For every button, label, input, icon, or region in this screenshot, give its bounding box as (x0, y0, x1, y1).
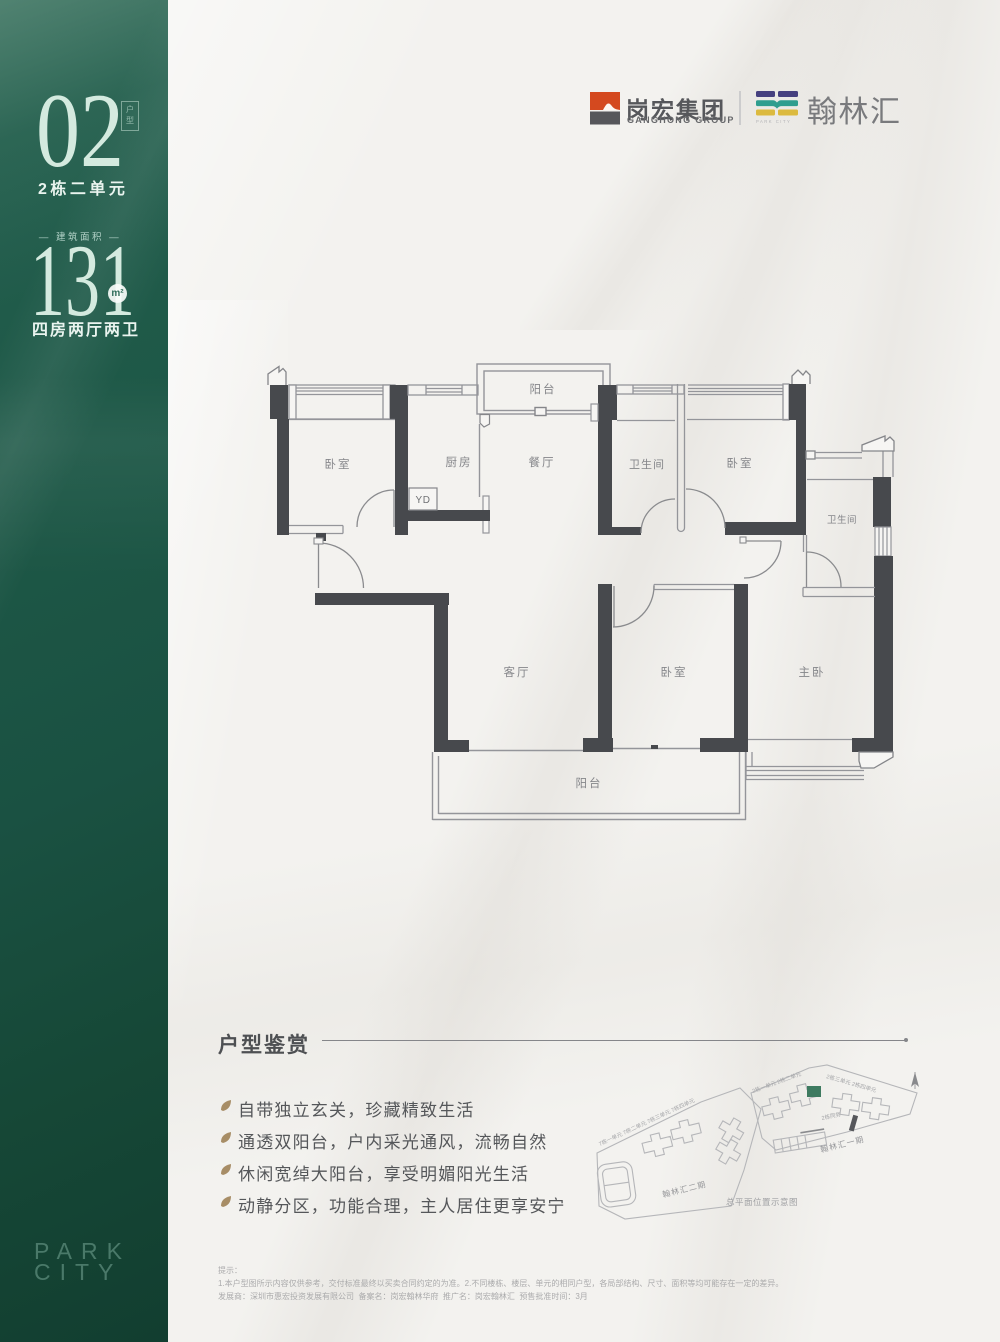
svg-text:2栋一单元 2栋二单元: 2栋一单元 2栋二单元 (751, 1070, 803, 1095)
svg-text:客厅: 客厅 (504, 665, 531, 679)
svg-text:阳台: 阳台 (530, 382, 557, 396)
svg-text:YD: YD (416, 495, 431, 506)
svg-text:主卧: 主卧 (799, 666, 826, 679)
svg-text:卧室: 卧室 (661, 665, 688, 679)
svg-text:总平面位置示意图: 总平面位置示意图 (726, 1197, 798, 1207)
svg-text:2栋三单元 2栋四单元: 2栋三单元 2栋四单元 (825, 1072, 877, 1094)
svg-text:餐厅: 餐厅 (529, 455, 556, 469)
svg-text:卧室: 卧室 (325, 457, 352, 471)
svg-text:2栋同务: 2栋同务 (821, 1110, 842, 1122)
svg-text:厨房: 厨房 (446, 456, 473, 469)
svg-text:翰林汇二期: 翰林汇二期 (661, 1179, 707, 1200)
svg-text:卧室: 卧室 (727, 456, 754, 470)
svg-text:卫生间: 卫生间 (827, 514, 857, 526)
svg-text:7栋一单元 7栋二单元 7栋三单元 7栋四单元: 7栋一单元 7栋二单元 7栋三单元 7栋四单元 (597, 1096, 696, 1148)
svg-text:阳台: 阳台 (576, 776, 603, 790)
svg-text:卫生间: 卫生间 (629, 457, 665, 471)
